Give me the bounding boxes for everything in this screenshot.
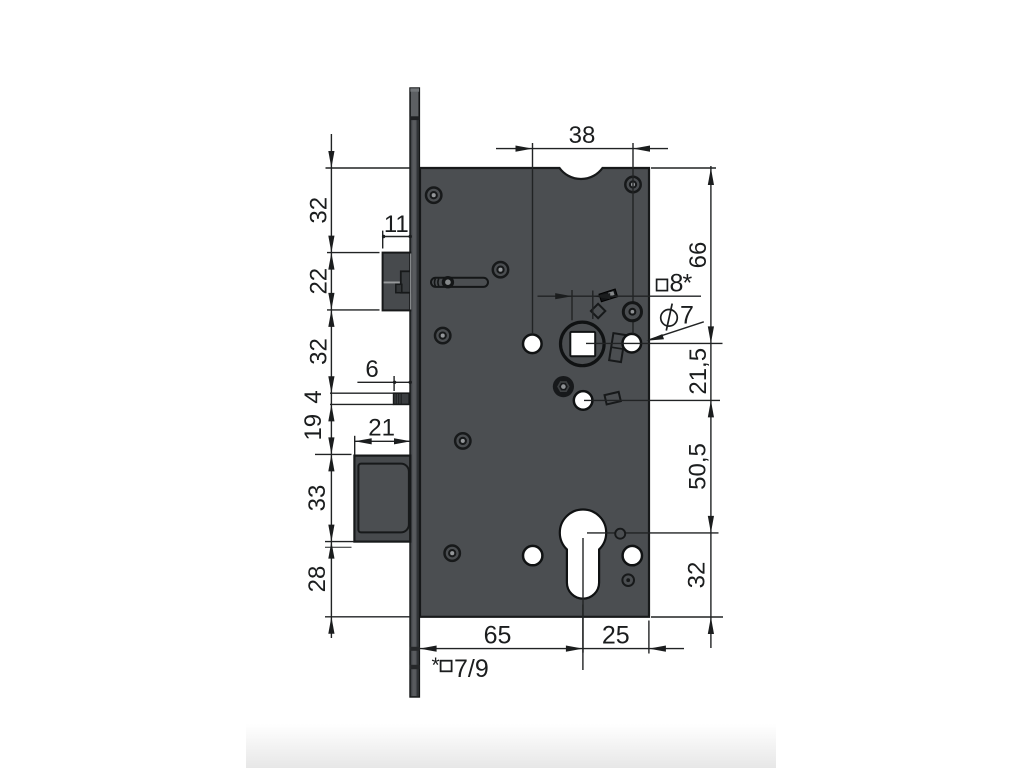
svg-text:38: 38 bbox=[569, 122, 596, 149]
svg-text:21: 21 bbox=[368, 415, 395, 442]
svg-text:11: 11 bbox=[384, 211, 409, 238]
svg-text:*: * bbox=[432, 654, 440, 677]
svg-text:7/9: 7/9 bbox=[454, 655, 489, 683]
svg-text:19: 19 bbox=[300, 414, 327, 441]
svg-text:7: 7 bbox=[680, 302, 694, 330]
svg-text:32: 32 bbox=[306, 197, 333, 224]
svg-text:50,5: 50,5 bbox=[685, 443, 712, 490]
svg-text:32: 32 bbox=[684, 562, 711, 589]
svg-text:66: 66 bbox=[685, 242, 712, 269]
svg-text:28: 28 bbox=[304, 566, 331, 593]
svg-text:65: 65 bbox=[484, 622, 512, 650]
svg-text:21,5: 21,5 bbox=[685, 348, 712, 395]
svg-text:4: 4 bbox=[300, 390, 327, 403]
svg-text:25: 25 bbox=[602, 622, 630, 650]
svg-text:32: 32 bbox=[306, 338, 333, 365]
svg-text:33: 33 bbox=[304, 485, 331, 512]
svg-text:6: 6 bbox=[365, 356, 378, 383]
svg-text:8: 8 bbox=[669, 270, 683, 298]
svg-text:*: * bbox=[683, 270, 693, 298]
svg-text:22: 22 bbox=[306, 268, 333, 295]
